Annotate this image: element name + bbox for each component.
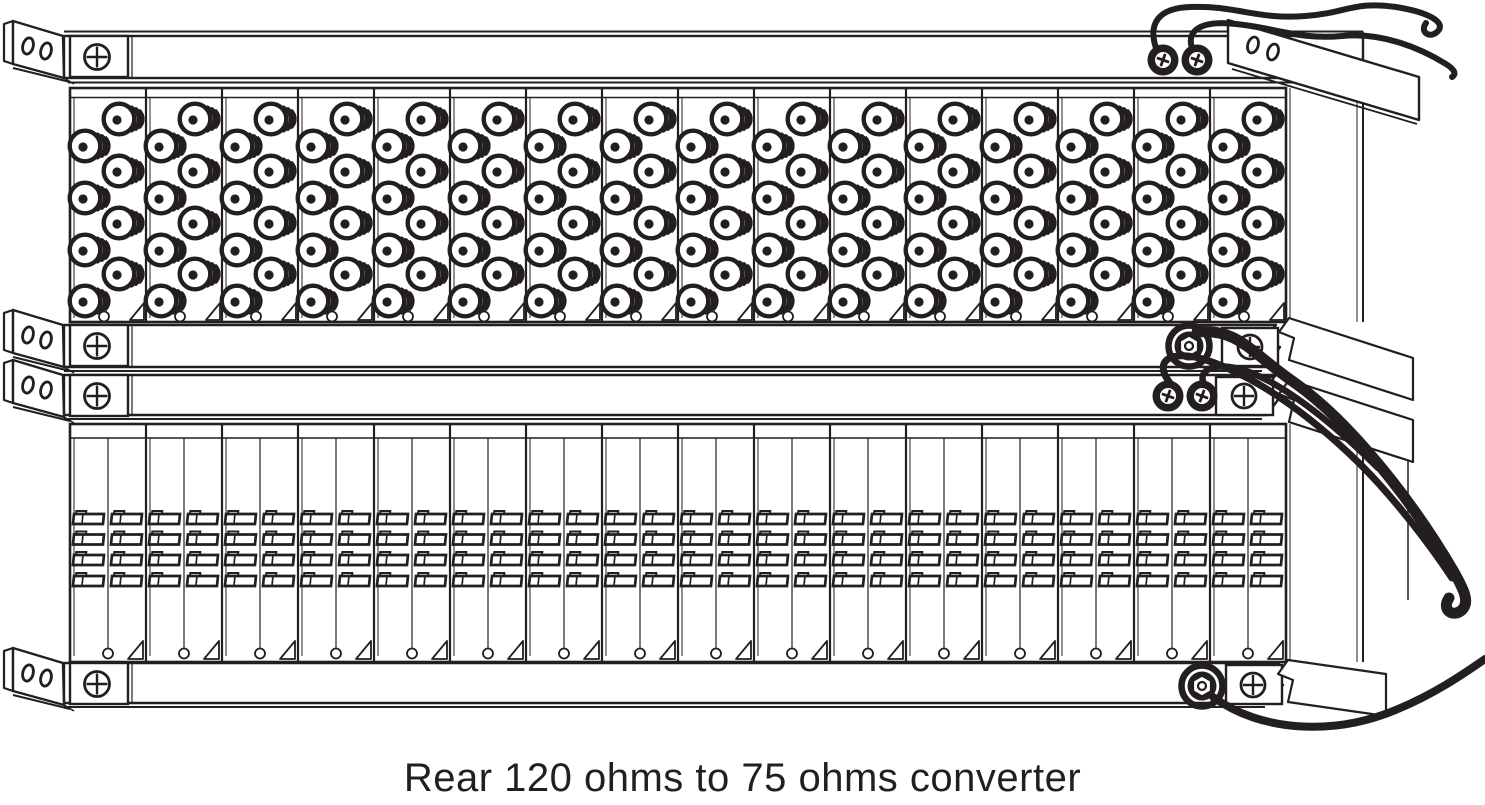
terminal-block [225, 552, 256, 565]
coax-connector [906, 183, 946, 214]
terminal-block [681, 511, 712, 524]
coax-connector [1168, 156, 1208, 187]
coax-connector [636, 104, 676, 135]
terminal-block [643, 552, 674, 565]
coax-connector [602, 183, 642, 214]
terminal-block [415, 532, 446, 545]
coax-connector [1016, 259, 1056, 290]
coax-connector-panel [70, 83, 1363, 322]
terminal-block [909, 511, 940, 524]
terminal-block [909, 552, 940, 565]
card-screw-hole [939, 649, 949, 659]
terminal-block [1137, 552, 1168, 565]
card-screw-hole [179, 649, 189, 659]
card-screw-hole [1091, 649, 1101, 659]
diagram-canvas: Rear 120 ohms to 75 ohms converter [0, 0, 1485, 805]
coax-connector [940, 208, 980, 239]
coax-connector [256, 156, 296, 187]
terminal-block [643, 532, 674, 545]
coax-connector [712, 208, 752, 239]
terminal-block [225, 532, 256, 545]
terminal-block [453, 532, 484, 545]
coax-connector [104, 104, 144, 135]
coax-connector [982, 235, 1022, 266]
coax-connector [560, 104, 600, 135]
terminal-block [377, 552, 408, 565]
coax-connector [712, 104, 752, 135]
coax-connector [1134, 235, 1174, 266]
card-screw-hole [1011, 312, 1021, 322]
coax-connector [864, 104, 904, 135]
terminal-block [1061, 511, 1092, 524]
coax-connector [1210, 183, 1250, 214]
coax-connector [788, 156, 828, 187]
card-screw-hole [479, 312, 489, 322]
coax-connector [374, 183, 414, 214]
terminal-block [719, 573, 750, 586]
terminal-block [719, 552, 750, 565]
terminal-block [1137, 511, 1168, 524]
coax-connector [484, 156, 524, 187]
terminal-block [377, 573, 408, 586]
terminal-block [453, 511, 484, 524]
coax-connector [560, 259, 600, 290]
terminal-block [1251, 511, 1282, 524]
terminal-block [985, 532, 1016, 545]
terminal-block [757, 532, 788, 545]
coax-connector [484, 104, 524, 135]
terminal-block [1251, 573, 1282, 586]
coax-connector [1058, 131, 1098, 162]
coax-connector [180, 208, 220, 239]
terminal-block [301, 573, 332, 586]
coax-connector [1210, 235, 1250, 266]
terminal-block [1099, 552, 1130, 565]
coax-connector [104, 208, 144, 239]
terminal-block [111, 511, 142, 524]
terminal-block [529, 552, 560, 565]
terminal-block [871, 532, 902, 545]
coax-connector [1134, 183, 1174, 214]
terminal-block [1061, 532, 1092, 545]
ring-terminal-icon [1182, 45, 1213, 76]
terminal-block [377, 532, 408, 545]
terminal-block [605, 573, 636, 586]
coax-connector [70, 131, 110, 162]
terminal-block [605, 552, 636, 565]
coax-connector [1244, 259, 1284, 290]
terminal-block [1213, 532, 1244, 545]
coax-connector [146, 131, 186, 162]
phillips-screw-icon [85, 384, 110, 409]
card-screw-hole [631, 312, 641, 322]
terminal-block [1213, 552, 1244, 565]
card-screw-hole [331, 649, 341, 659]
coax-connector [222, 131, 262, 162]
coax-connector [830, 235, 870, 266]
coax-connector [332, 104, 372, 135]
coax-connector [332, 259, 372, 290]
terminal-block [491, 532, 522, 545]
terminal-block [187, 511, 218, 524]
terminal-block [491, 511, 522, 524]
caption: Rear 120 ohms to 75 ohms converter [0, 756, 1485, 801]
card-screw-hole [403, 312, 413, 322]
card-screw-hole [859, 312, 869, 322]
coax-connector [526, 183, 566, 214]
coax-connector [298, 235, 338, 266]
coax-connector [940, 259, 980, 290]
terminal-block [415, 511, 446, 524]
terminal-block [833, 573, 864, 586]
terminal-block [719, 511, 750, 524]
card-screw-hole [783, 312, 793, 322]
card-screw-hole [1087, 312, 1097, 322]
coax-connector [636, 259, 676, 290]
terminal-block [73, 552, 104, 565]
coax-connector [678, 131, 718, 162]
coax-connector [104, 259, 144, 290]
terminal-block [415, 552, 446, 565]
coax-connector [788, 208, 828, 239]
coax-connector [1092, 104, 1132, 135]
terminal-block [111, 552, 142, 565]
coax-connector [678, 183, 718, 214]
mount-ear-right [1278, 660, 1386, 716]
terminal-block [985, 552, 1016, 565]
bottom-rail [64, 663, 1283, 703]
terminal-block [149, 573, 180, 586]
coax-connector [180, 104, 220, 135]
card-screw-hole [635, 649, 645, 659]
terminal-block [491, 552, 522, 565]
coax-connector [484, 208, 524, 239]
card-screw-hole [787, 649, 797, 659]
coax-connector [70, 183, 110, 214]
coax-connector [754, 131, 794, 162]
terminal-block [985, 511, 1016, 524]
coax-connector [1092, 156, 1132, 187]
coax-connector [712, 259, 752, 290]
terminal-block [757, 552, 788, 565]
terminal-block [111, 573, 142, 586]
coax-connector [408, 104, 448, 135]
coax-connector [1244, 208, 1284, 239]
terminal-block [947, 573, 978, 586]
coax-connector [1134, 131, 1174, 162]
card-screw-hole [559, 649, 569, 659]
coax-connector [256, 104, 296, 135]
phillips-screw-icon [85, 334, 110, 359]
coax-connector [526, 131, 566, 162]
terminal-block [681, 573, 712, 586]
card-screw-hole [711, 649, 721, 659]
card-screw-hole [327, 312, 337, 322]
card-screw-hole [407, 649, 417, 659]
coax-connector [788, 104, 828, 135]
coax-connector [332, 156, 372, 187]
phillips-screw-icon [1241, 673, 1265, 697]
coax-connector [864, 156, 904, 187]
card-screw-hole [707, 312, 717, 322]
terminal-block [833, 511, 864, 524]
coax-connector [1168, 104, 1208, 135]
coax-connector [1244, 156, 1284, 187]
coax-connector [104, 156, 144, 187]
coax-connector [830, 131, 870, 162]
terminal-block [453, 552, 484, 565]
terminal-block [377, 511, 408, 524]
terminal-block [795, 532, 826, 545]
terminal-block [187, 532, 218, 545]
coax-connector [222, 183, 262, 214]
coax-connector [560, 156, 600, 187]
terminal-block [301, 532, 332, 545]
terminal-block [111, 532, 142, 545]
coax-connector [332, 208, 372, 239]
coax-connector [374, 131, 414, 162]
terminal-block [985, 573, 1016, 586]
ear-side [4, 648, 13, 691]
terminal-block [1213, 511, 1244, 524]
coax-connector [636, 208, 676, 239]
terminal-block [149, 511, 180, 524]
coax-connector [712, 156, 752, 187]
terminal-block [719, 532, 750, 545]
ring-terminal-icon [1148, 45, 1179, 76]
terminal-block [339, 573, 370, 586]
middle-rail-lower [64, 375, 1280, 415]
terminal-block [1251, 532, 1282, 545]
coax-connector [830, 183, 870, 214]
coax-connector [526, 235, 566, 266]
coax-connector [408, 259, 448, 290]
terminal-block [795, 511, 826, 524]
terminal-block [301, 511, 332, 524]
terminal-block [567, 511, 598, 524]
terminal-block [1099, 573, 1130, 586]
coax-connector [940, 104, 980, 135]
terminal-block [681, 532, 712, 545]
terminal-block [567, 532, 598, 545]
terminal-block [225, 511, 256, 524]
terminal-block [1251, 552, 1282, 565]
terminal-block [757, 573, 788, 586]
terminal-block [795, 573, 826, 586]
terminal-block [947, 511, 978, 524]
coax-connector [180, 259, 220, 290]
coax-connector [602, 235, 642, 266]
terminal-block [187, 573, 218, 586]
coax-connector [408, 208, 448, 239]
terminal-block [871, 511, 902, 524]
coax-connector [906, 131, 946, 162]
ear-side [4, 21, 13, 64]
terminal-block [1061, 573, 1092, 586]
coax-connector [146, 235, 186, 266]
card-screw-hole [1163, 312, 1173, 322]
middle-rail-upper [64, 325, 1280, 367]
card-screw-hole [255, 649, 265, 659]
card-screw-hole [863, 649, 873, 659]
terminal-block [1175, 552, 1206, 565]
coax-connector [982, 183, 1022, 214]
terminal-block [529, 532, 560, 545]
phillips-screw-icon [1232, 384, 1256, 408]
coax-connector [1058, 235, 1098, 266]
terminal-block [1137, 532, 1168, 545]
terminal-block [833, 552, 864, 565]
coax-connector [864, 208, 904, 239]
terminal-block [605, 532, 636, 545]
terminal-block [871, 573, 902, 586]
coax-connector [146, 183, 186, 214]
coax-connector [1210, 131, 1250, 162]
card-screw-hole [175, 312, 185, 322]
coax-connector [180, 156, 220, 187]
terminal-block [567, 552, 598, 565]
terminal-block [149, 552, 180, 565]
coax-connector [788, 259, 828, 290]
terminal-block [263, 552, 294, 565]
coax-connector [408, 156, 448, 187]
terminal-block [681, 552, 712, 565]
terminal-block [1099, 532, 1130, 545]
card-screw-hole [251, 312, 261, 322]
coax-connector [1092, 259, 1132, 290]
coax-connector [1092, 208, 1132, 239]
coax-connector [450, 183, 490, 214]
terminal-block [339, 532, 370, 545]
card-screw-hole [1239, 312, 1249, 322]
terminal-block [947, 552, 978, 565]
card-screw-hole [1167, 649, 1177, 659]
terminal-block [871, 552, 902, 565]
terminal-block [1213, 573, 1244, 586]
terminal-block [947, 532, 978, 545]
ear-side [4, 310, 13, 353]
terminal-block [1175, 532, 1206, 545]
terminal-block [567, 573, 598, 586]
coax-connector [484, 259, 524, 290]
terminal-block [909, 573, 940, 586]
terminal-block [187, 552, 218, 565]
converter-rear-illustration [0, 0, 1485, 805]
terminal-block [1099, 511, 1130, 524]
terminal-block [643, 511, 674, 524]
terminal-block [339, 552, 370, 565]
coax-connector [906, 235, 946, 266]
terminal-block [225, 573, 256, 586]
coax-connector [256, 208, 296, 239]
terminal-block [1061, 552, 1092, 565]
terminal-block [757, 511, 788, 524]
coax-connector [1016, 208, 1056, 239]
terminal-card-panel [70, 424, 1408, 662]
card-screw-hole [103, 649, 113, 659]
card-screw-hole [483, 649, 493, 659]
coax-connector [560, 208, 600, 239]
coax-connector [602, 131, 642, 162]
card-screw-hole [1015, 649, 1025, 659]
card-screw-hole [99, 312, 109, 322]
coax-connector [450, 131, 490, 162]
terminal-block [833, 532, 864, 545]
terminal-block [1137, 573, 1168, 586]
terminal-block [529, 511, 560, 524]
terminal-block [1175, 573, 1206, 586]
card-screw-hole [935, 312, 945, 322]
terminal-block [73, 573, 104, 586]
terminal-block [491, 573, 522, 586]
terminal-block [149, 532, 180, 545]
terminal-block [909, 532, 940, 545]
coax-connector [636, 156, 676, 187]
coax-connector [222, 235, 262, 266]
terminal-block [1175, 511, 1206, 524]
terminal-block [415, 573, 446, 586]
coax-connector [982, 131, 1022, 162]
card-screw-hole [555, 312, 565, 322]
coax-connector [256, 259, 296, 290]
terminal-block [795, 552, 826, 565]
terminal-block [1023, 511, 1054, 524]
coax-connector [1016, 104, 1056, 135]
coax-connector [70, 235, 110, 266]
coax-connector [864, 259, 904, 290]
coax-connector [940, 156, 980, 187]
card-screw-hole [1243, 649, 1253, 659]
coax-connector [298, 131, 338, 162]
terminal-block [263, 532, 294, 545]
coax-connector [374, 235, 414, 266]
terminal-block [339, 511, 370, 524]
terminal-block [1023, 552, 1054, 565]
terminal-block [529, 573, 560, 586]
terminal-block [263, 573, 294, 586]
coax-connector [1016, 156, 1056, 187]
coax-connector [298, 183, 338, 214]
phillips-screw-icon [85, 672, 110, 697]
terminal-block [1023, 573, 1054, 586]
phillips-screw-icon [85, 45, 110, 70]
coax-connector [1168, 259, 1208, 290]
terminal-block [1023, 532, 1054, 545]
coax-connector [1244, 104, 1284, 135]
coax-connector [754, 183, 794, 214]
coax-connector [450, 235, 490, 266]
ear-side [4, 360, 13, 403]
terminal-block [453, 573, 484, 586]
terminal-block [643, 573, 674, 586]
terminal-block [263, 511, 294, 524]
terminal-block [73, 532, 104, 545]
terminal-block [301, 552, 332, 565]
terminal-block [605, 511, 636, 524]
coax-connector [1058, 183, 1098, 214]
terminal-block [73, 511, 104, 524]
coax-connector [1168, 208, 1208, 239]
coax-connector [754, 235, 794, 266]
coax-connector [678, 235, 718, 266]
